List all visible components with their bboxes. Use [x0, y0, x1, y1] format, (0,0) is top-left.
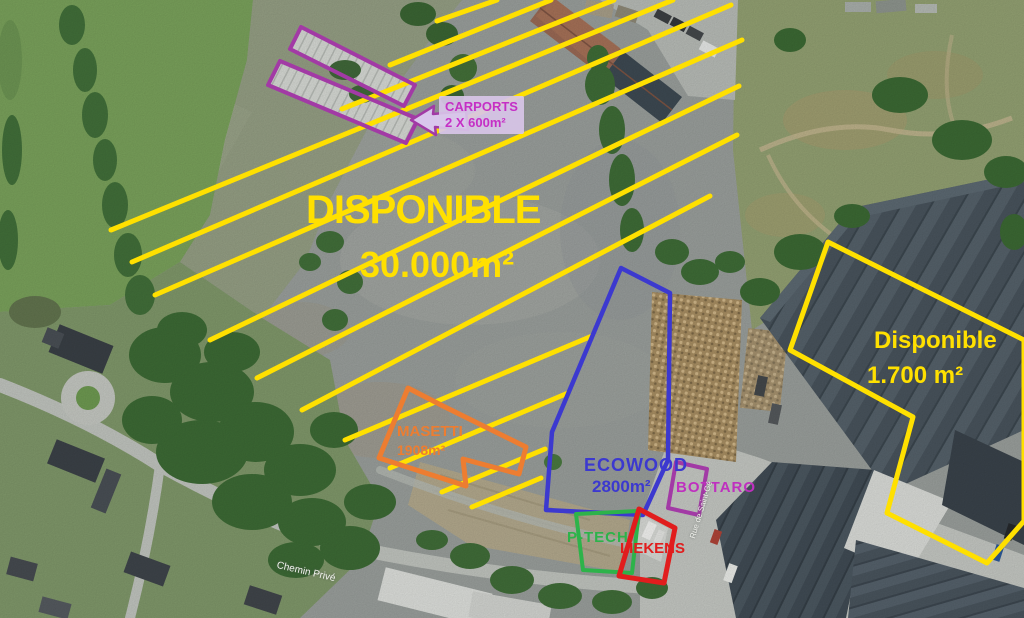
liekens-name: LIEKENS	[620, 541, 685, 556]
annotation-layer	[0, 0, 1024, 618]
bottaro-name: BOTTARO	[676, 480, 756, 495]
available-1700-outline	[790, 242, 1024, 563]
masetti-area: 1908m²	[397, 443, 445, 457]
right-available-title: Disponible	[874, 329, 997, 353]
main-available-area: 30.000m²	[360, 247, 514, 283]
carports-label-box: CARPORTS 2 X 600m²	[439, 96, 524, 134]
carports-name: CARPORTS	[445, 99, 518, 115]
masetti-name: MASETTI	[397, 424, 463, 439]
carports-detail: 2 X 600m²	[445, 115, 518, 131]
main-available-title: DISPONIBLE	[306, 190, 540, 230]
aerial-site-map: DISPONIBLE 30.000m² CARPORTS 2 X 600m² M…	[0, 0, 1024, 618]
ecowood-area: 2800m²	[592, 478, 651, 495]
ecowood-name: ECOWOOD	[584, 456, 688, 474]
right-available-area: 1.700 m²	[867, 364, 963, 388]
